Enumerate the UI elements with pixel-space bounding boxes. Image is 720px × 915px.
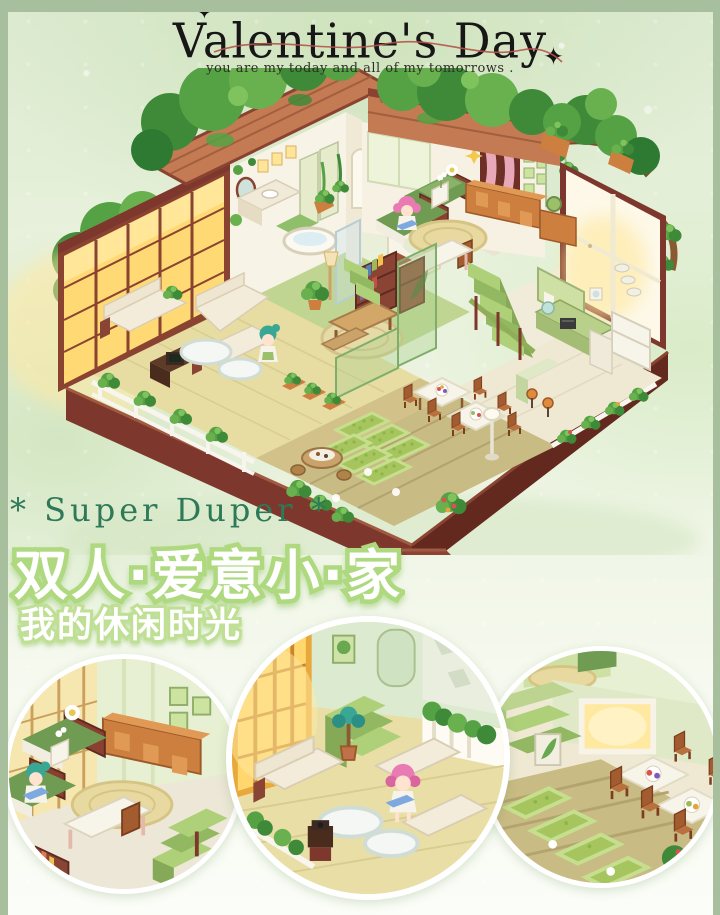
house-illustration xyxy=(0,68,720,555)
detail-circle-living-room xyxy=(226,616,510,900)
detail-circle-bedroom xyxy=(4,654,244,894)
valentine-poster: ✦ Valentine's Day ✦ you are my today and… xyxy=(0,0,720,915)
frame-border-top xyxy=(0,0,720,12)
poster-subtitle: you are my today and all of my tomorrows… xyxy=(0,61,720,76)
frame-border-left xyxy=(0,0,8,915)
detail-circle-dining xyxy=(480,646,720,888)
sparkle-icon: ✦ xyxy=(543,44,564,69)
super-duper-tagline: * Super Duper * xyxy=(10,491,331,529)
frame-border-right xyxy=(713,0,720,915)
subheadline-zh-fill: 我的休闲时光 xyxy=(20,597,242,648)
